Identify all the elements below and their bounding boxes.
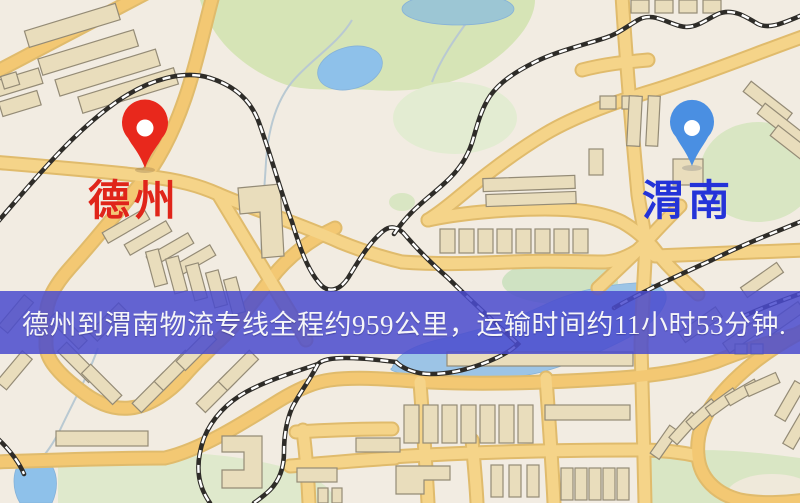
destination-city-label: 渭南	[642, 181, 734, 223]
map-art	[0, 0, 800, 503]
origin-city-label: 德州	[88, 181, 180, 223]
route-info-text: 德州到渭南物流专线全程约959公里，运输时间约11小时53分钟.	[22, 303, 786, 342]
route-info-banner: 德州到渭南物流专线全程约959公里，运输时间约11小时53分钟.	[0, 291, 800, 354]
map-canvas[interactable]: 德州 渭南 德州到渭南物流专线全程约959公里，运输时间约11小时53分钟.	[0, 0, 800, 503]
